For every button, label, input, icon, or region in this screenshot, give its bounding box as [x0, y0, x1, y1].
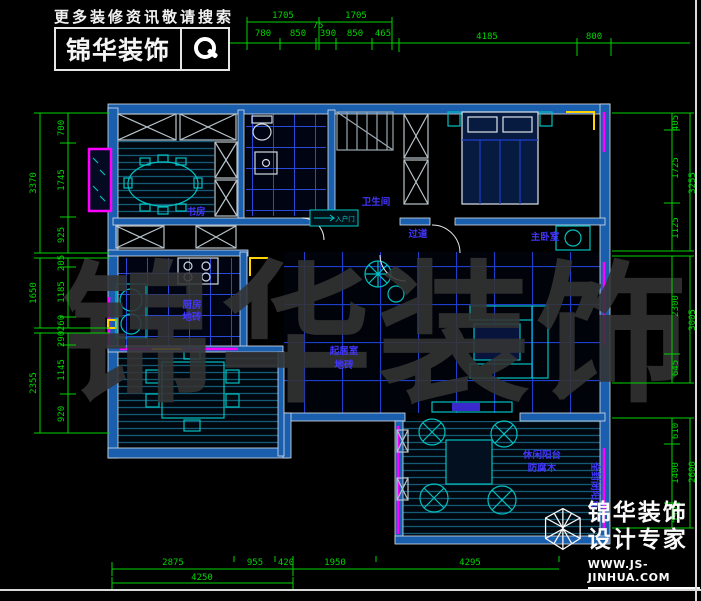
dim-label: 780 — [255, 29, 271, 39]
wall-int-3 — [328, 110, 335, 225]
dim-label: 920 — [57, 406, 67, 422]
living-label: 起居室 — [329, 345, 359, 357]
study-label: 书房 — [186, 206, 205, 218]
dim-label: 290 — [57, 331, 67, 347]
top-logo: 锦华装饰 — [54, 27, 230, 71]
bathroom-floor — [246, 112, 326, 216]
kitchen-label: 厨房 — [182, 299, 201, 311]
bathroom-label: 卫生间 — [362, 196, 391, 208]
dim-label: 1125 — [671, 217, 681, 239]
wall-int-4 — [400, 218, 430, 225]
master-window-frame — [566, 112, 594, 130]
entry-note-label: 入户门 — [335, 214, 355, 223]
dim-label: 390 — [320, 29, 336, 39]
dim-label: 850 — [290, 29, 306, 39]
cube-logo-icon — [544, 500, 582, 558]
dim-label: 850 — [347, 29, 363, 39]
dim-label: 645 — [671, 360, 681, 376]
dim-label: 1705 — [272, 11, 294, 21]
logo-search-cell — [182, 29, 228, 69]
dim-label: 4185 — [476, 32, 498, 42]
footer-url: WWW.JS-JINHUA.COM — [588, 558, 700, 589]
dim-label: 405 — [671, 115, 681, 131]
wall-int-1 — [113, 218, 338, 225]
footer-brand-line1: 锦华装饰 — [588, 500, 700, 527]
dim-label: 420 — [278, 558, 294, 568]
magnifier-icon — [193, 37, 217, 61]
dim-label: 1745 — [57, 169, 67, 191]
dim-label: 1400 — [671, 462, 681, 484]
dim-label: 2300 — [671, 295, 681, 317]
dim-label: 955 — [247, 558, 263, 568]
wall-int-2 — [238, 110, 244, 218]
dim-label: 1705 — [345, 11, 367, 21]
dim-label: 4295 — [459, 558, 481, 568]
kitchen-floor-label: 地砖 — [182, 311, 202, 323]
dim-label: 1145 — [57, 359, 67, 381]
hallway-label: 过道 — [408, 228, 428, 240]
dim-label: 4250 — [191, 573, 213, 583]
dim-label: 205 — [57, 255, 67, 271]
dim-label: 1950 — [324, 558, 346, 568]
wall-int-5 — [455, 218, 605, 225]
sheet-border-right — [695, 0, 697, 601]
dim-label: 700 — [57, 120, 67, 136]
dim-label: 2875 — [162, 558, 184, 568]
dim-label: 1185 — [57, 281, 67, 303]
bottom-logo: 锦华装饰 设计专家 WWW.JS-JINHUA.COM — [544, 500, 700, 589]
dim-label: 925 — [57, 227, 67, 243]
dim-label: 1650 — [29, 282, 39, 304]
dim-label: 800 — [586, 32, 602, 42]
dim-label: 260 — [57, 315, 67, 331]
dim-label: 610 — [671, 423, 681, 439]
living-floor-label: 地砖 — [334, 359, 354, 371]
master-bed — [404, 112, 552, 204]
dim-label: 3370 — [29, 172, 39, 194]
sheet-border-bottom — [0, 589, 701, 591]
balcony-label: 休闲阳台 — [522, 449, 562, 461]
cad-floorplan-page: 入户门 锦华装饰 书房 卫生间 过道 主卧室 厨房 地砖 起居室 地砖 休闲阳台… — [0, 0, 701, 601]
balcony-floor-label: 防腐木 — [528, 462, 557, 474]
tagline-text: 更多装修资讯敬请搜索 — [54, 6, 234, 27]
entry-cabinet — [337, 112, 393, 150]
footer-brand-line2: 设计专家 — [588, 527, 700, 554]
dim-label: 2355 — [29, 372, 39, 394]
master-bedroom-label: 主卧室 — [531, 231, 560, 243]
logo-wordmark: 锦华装饰 — [56, 29, 180, 69]
watermark-text: 锦华装饰 — [62, 247, 694, 424]
dim-label: 1725 — [671, 157, 681, 179]
entry-legend: 入户门 — [310, 210, 358, 226]
bay-window — [89, 149, 111, 211]
wall-bottom-left — [108, 448, 288, 458]
dim-label: 465 — [375, 29, 391, 39]
